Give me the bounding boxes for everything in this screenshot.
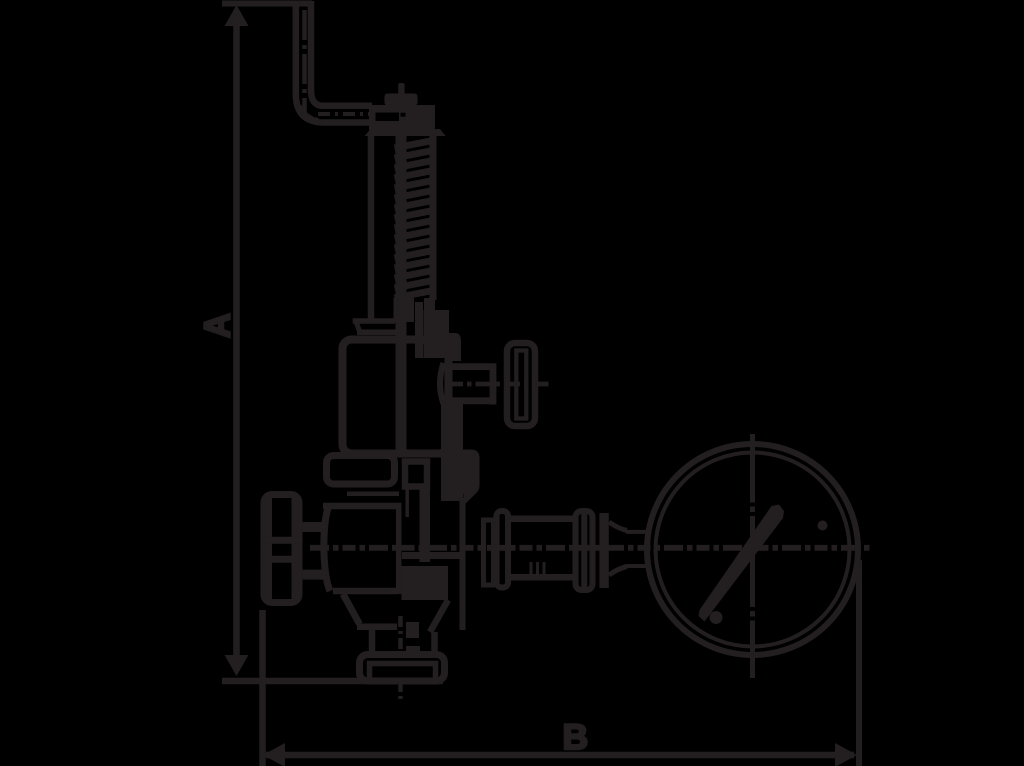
svg-text:A: A [198, 313, 238, 338]
svg-text:B: B [563, 717, 589, 757]
